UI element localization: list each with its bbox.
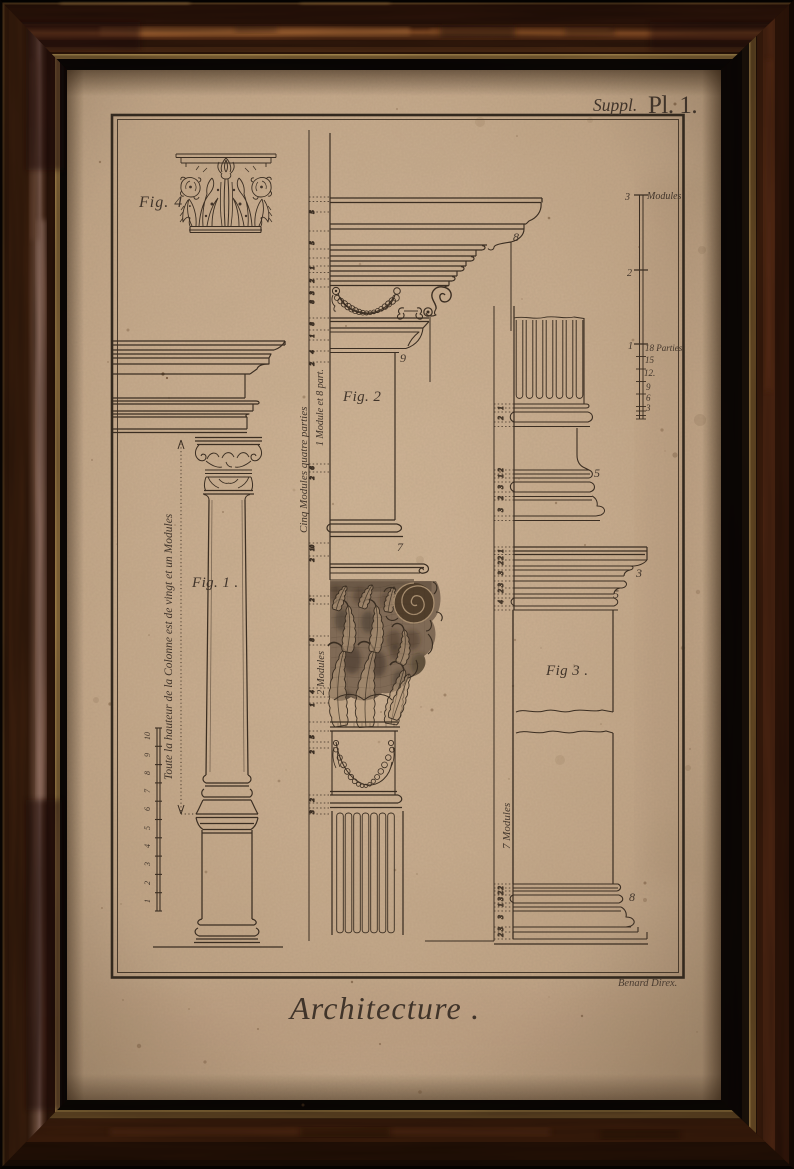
svg-text:7: 7	[397, 540, 404, 554]
svg-text:3: 3	[497, 915, 505, 920]
svg-text:2: 2	[497, 468, 505, 472]
svg-text:1: 1	[628, 341, 633, 352]
svg-text:2: 2	[497, 416, 505, 420]
svg-text:2: 2	[497, 496, 505, 500]
svg-text:15: 15	[645, 355, 655, 365]
svg-text:3: 3	[497, 571, 505, 576]
svg-text:Pl. 1.: Pl. 1.	[648, 92, 697, 119]
svg-text:Benard Direx.: Benard Direx.	[618, 978, 677, 989]
svg-text:12.: 12.	[644, 368, 655, 378]
svg-text:6: 6	[646, 393, 651, 403]
svg-text:3: 3	[635, 566, 642, 580]
svg-text:10: 10	[310, 545, 316, 551]
svg-text:2: 2	[497, 561, 505, 565]
svg-text:Toute la hauteur de la Colonne: Toute la hauteur de la Colonne est de vi…	[163, 513, 175, 780]
svg-text:2: 2	[627, 268, 632, 279]
svg-text:1: 1	[309, 334, 316, 337]
svg-text:Fig. 1 .: Fig. 1 .	[191, 575, 239, 591]
svg-text:3: 3	[143, 862, 152, 867]
svg-text:Modules: Modules	[646, 191, 682, 202]
svg-text:3: 3	[497, 897, 505, 902]
svg-text:6: 6	[143, 807, 152, 811]
svg-text:Fig 3 .: Fig 3 .	[545, 663, 588, 679]
svg-text:1: 1	[309, 703, 316, 706]
svg-text:1: 1	[497, 474, 505, 478]
svg-text:2: 2	[497, 933, 505, 937]
svg-text:9: 9	[400, 351, 406, 365]
svg-text:8: 8	[629, 890, 635, 904]
svg-text:2: 2	[497, 556, 505, 560]
svg-text:18 Parties: 18 Parties	[645, 343, 683, 353]
svg-text:5: 5	[594, 466, 600, 480]
svg-text:4: 4	[143, 844, 152, 848]
svg-text:1: 1	[309, 266, 316, 269]
svg-text:Suppl.: Suppl.	[593, 95, 637, 115]
svg-text:1: 1	[497, 903, 505, 907]
svg-text:1: 1	[143, 899, 152, 903]
svg-text:9: 9	[143, 753, 152, 757]
svg-text:5: 5	[143, 826, 152, 830]
svg-text:2: 2	[497, 589, 505, 593]
svg-text:Fig. 4 .: Fig. 4 .	[138, 194, 193, 211]
svg-text:7 Modules: 7 Modules	[501, 803, 513, 849]
svg-text:9: 9	[646, 382, 651, 392]
svg-text:3: 3	[497, 508, 505, 513]
svg-text:8: 8	[513, 230, 519, 244]
svg-text:Architecture .: Architecture .	[288, 990, 480, 1026]
svg-text:3: 3	[497, 583, 505, 588]
svg-text:2: 2	[143, 881, 152, 885]
svg-text:4: 4	[497, 600, 505, 604]
svg-text:1: 1	[497, 406, 505, 410]
svg-text:1 Module et 8 part.: 1 Module et 8 part.	[315, 369, 326, 446]
svg-text:2: 2	[497, 886, 505, 890]
svg-text:1: 1	[497, 549, 505, 553]
svg-text:10: 10	[143, 732, 152, 740]
svg-text:3: 3	[497, 927, 505, 932]
svg-text:8: 8	[143, 771, 152, 775]
svg-text:3: 3	[624, 192, 630, 203]
svg-text:Fig. 2: Fig. 2	[342, 389, 381, 405]
svg-text:2: 2	[497, 891, 505, 895]
svg-text:3: 3	[497, 485, 505, 490]
svg-text:3: 3	[645, 403, 651, 413]
